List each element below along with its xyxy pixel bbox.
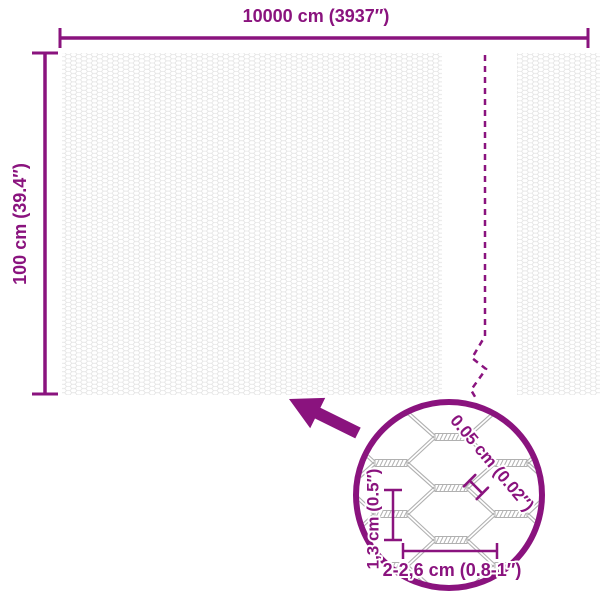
cell-height-label: 1,3 cm (0.5″) bbox=[364, 469, 383, 570]
mesh-panel-left bbox=[62, 53, 442, 395]
height-dimension-label: 100 cm (39.4″) bbox=[10, 163, 30, 285]
height-dimension: 100 cm (39.4″) bbox=[10, 53, 58, 394]
zoom-detail-callout: 0.05 cm (0.02″) 1,3 cm (0.5″) 2-2,6 cm (… bbox=[315, 383, 587, 595]
product-dimension-diagram: 10000 cm (3937″) 100 cm (39.4″) 0.05 c bbox=[0, 0, 600, 600]
width-dimension-label: 10000 cm (3937″) bbox=[243, 6, 390, 26]
mesh-panel-right bbox=[517, 53, 600, 395]
diagram-canvas: 10000 cm (3937″) 100 cm (39.4″) 0.05 c bbox=[0, 0, 600, 600]
break-line bbox=[471, 55, 486, 400]
width-dimension: 10000 cm (3937″) bbox=[60, 6, 588, 48]
cell-width-label: 2-2,6 cm (0.8-1″) bbox=[383, 560, 522, 580]
pointer-arrow-icon bbox=[289, 398, 361, 439]
